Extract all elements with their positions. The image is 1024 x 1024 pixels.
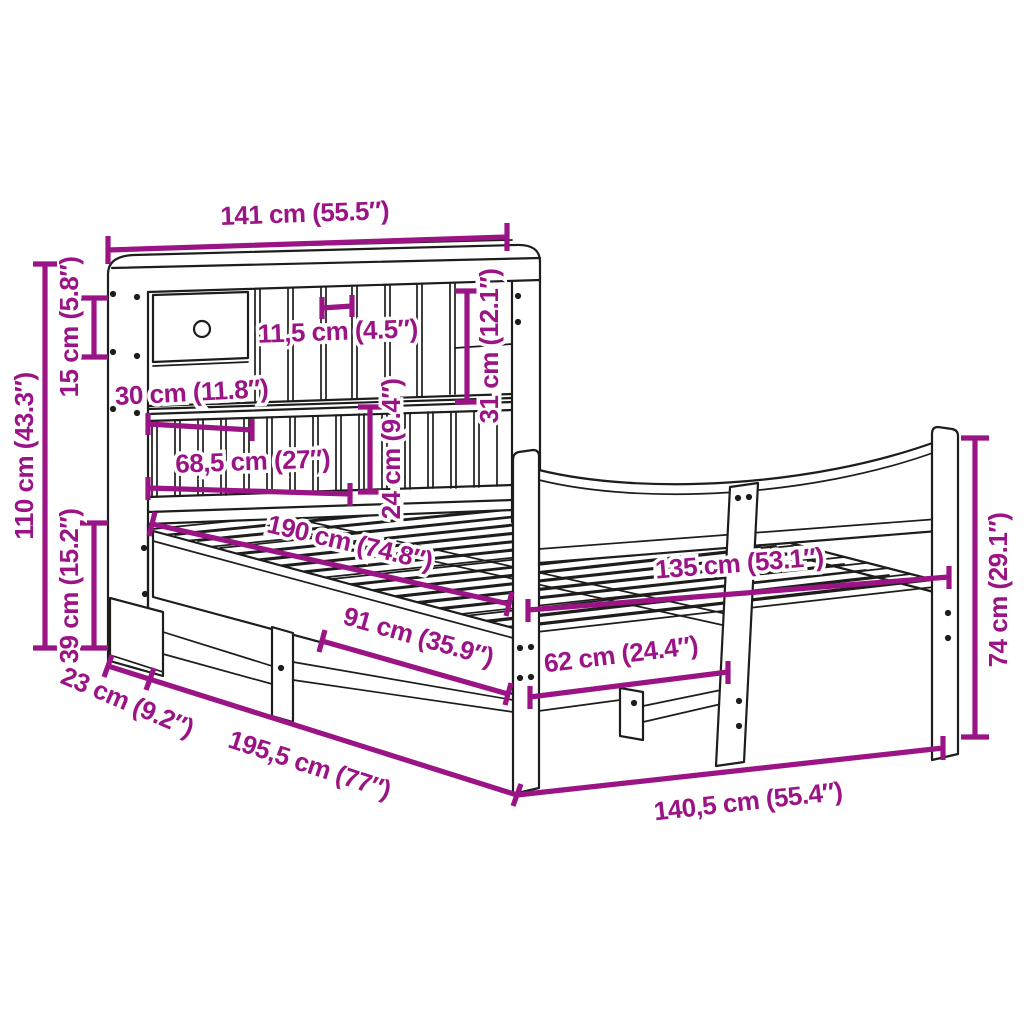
dimension-74: 74 cm (29.1″) [961,438,1013,737]
headboard-base [110,598,163,676]
dim-label-31: 31 cm (12.1″) [474,269,504,424]
dim-label-140-5: 140,5 cm (55.4″) [652,776,844,827]
dimension-110: 110 cm (43.3″) [9,264,57,648]
dim-label-74: 74 cm (29.1″) [983,513,1013,668]
dimension-15: 15 cm (5.8″) [54,257,108,398]
bed-illustration [108,240,958,794]
diagram-canvas: 141 cm (55.5″) 15 cm (5.8″) 110 cm (43.3… [0,0,1024,1024]
dim-label-195-5: 195,5 cm (77″) [225,724,395,805]
dim-label-24: 24 cm (9.4″) [376,379,406,520]
footboard-right-post [932,427,958,760]
foot-center-leg [620,688,643,740]
dim-label-39: 39 cm (15.2″) [54,509,84,664]
dim-label-11-5: 11,5 cm (4.5″) [257,313,418,349]
center-leg [272,627,293,722]
dim-label-68-5: 68,5 cm (27″) [175,443,331,478]
bed-dimension-diagram: 141 cm (55.5″) 15 cm (5.8″) 110 cm (43.3… [0,0,1024,1024]
dim-label-141: 141 cm (55.5″) [220,195,390,231]
dim-label-15: 15 cm (5.8″) [54,257,84,398]
dim-label-110: 110 cm (43.3″) [9,372,39,539]
dim-label-62: 62 cm (24.4″) [542,630,699,679]
dimension-39: 39 cm (15.2″) [54,509,108,664]
